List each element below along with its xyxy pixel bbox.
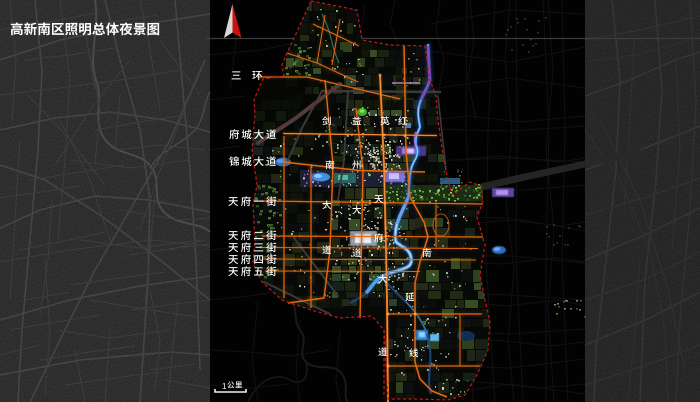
svg-text:1: 1 bbox=[222, 382, 227, 391]
